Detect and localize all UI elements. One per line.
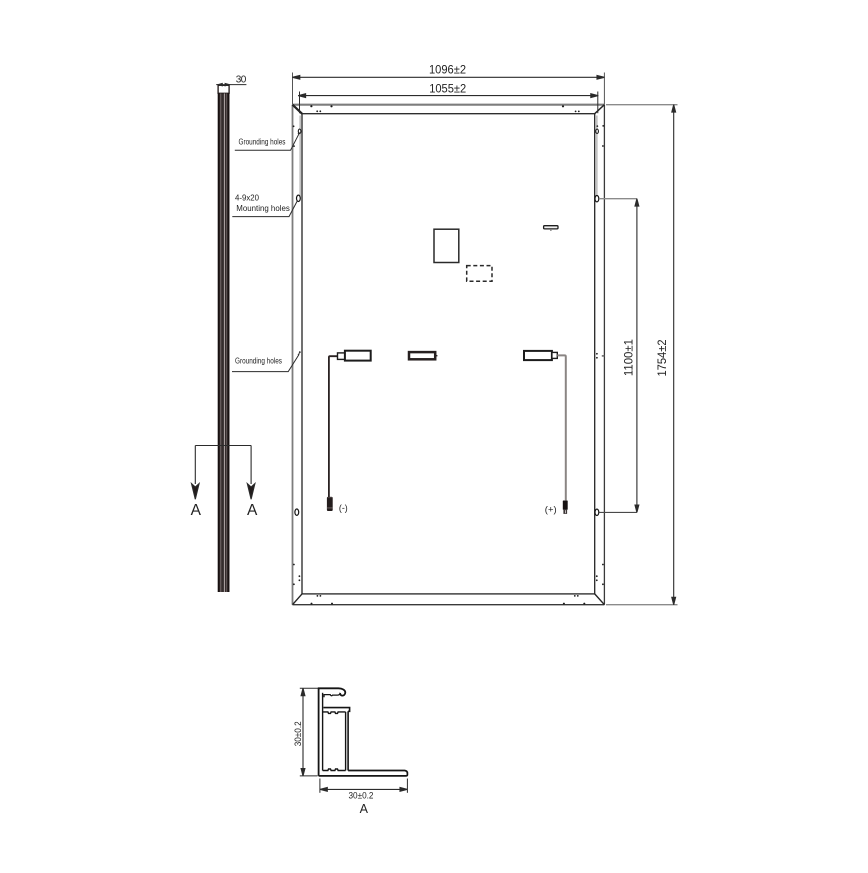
svg-text:1754±2: 1754±2	[657, 340, 669, 377]
svg-text:Grounding holes: Grounding holes	[239, 137, 286, 146]
svg-text:1100±1: 1100±1	[624, 339, 636, 376]
svg-text:30±0.2: 30±0.2	[349, 790, 374, 801]
svg-text:A: A	[360, 802, 369, 816]
svg-text:A: A	[191, 502, 202, 519]
svg-text:1096±2: 1096±2	[429, 65, 466, 77]
svg-text:(+): (+)	[545, 505, 557, 516]
svg-text:4-9x20: 4-9x20	[235, 193, 260, 202]
svg-text:(-): (-)	[339, 503, 348, 514]
svg-text:Mounting holes: Mounting holes	[236, 204, 289, 213]
svg-text:Grounding holes: Grounding holes	[235, 356, 282, 365]
svg-text:A: A	[247, 502, 258, 519]
svg-text:1055±2: 1055±2	[429, 84, 466, 96]
svg-text:30±0.2: 30±0.2	[293, 721, 304, 746]
svg-text:30: 30	[236, 75, 247, 86]
